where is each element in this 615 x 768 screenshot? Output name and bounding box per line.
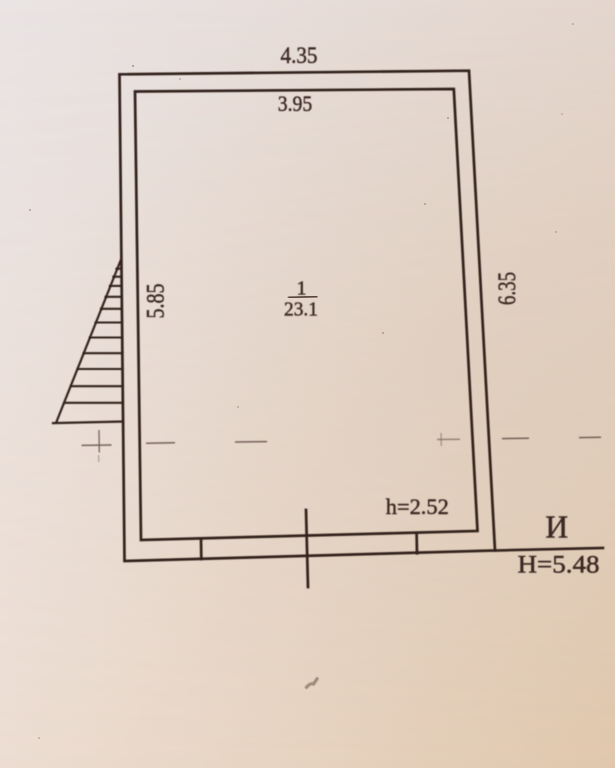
svg-text:23.1: 23.1 bbox=[284, 299, 318, 321]
svg-text:h=2.52: h=2.52 bbox=[386, 494, 449, 519]
svg-text:3.95: 3.95 bbox=[278, 91, 313, 116]
svg-text:4.35: 4.35 bbox=[281, 43, 318, 68]
svg-text:H=5.48: H=5.48 bbox=[518, 552, 600, 579]
svg-text:И: И bbox=[545, 510, 568, 545]
svg-text:6.35: 6.35 bbox=[494, 272, 521, 305]
svg-text:5.85: 5.85 bbox=[143, 284, 170, 319]
